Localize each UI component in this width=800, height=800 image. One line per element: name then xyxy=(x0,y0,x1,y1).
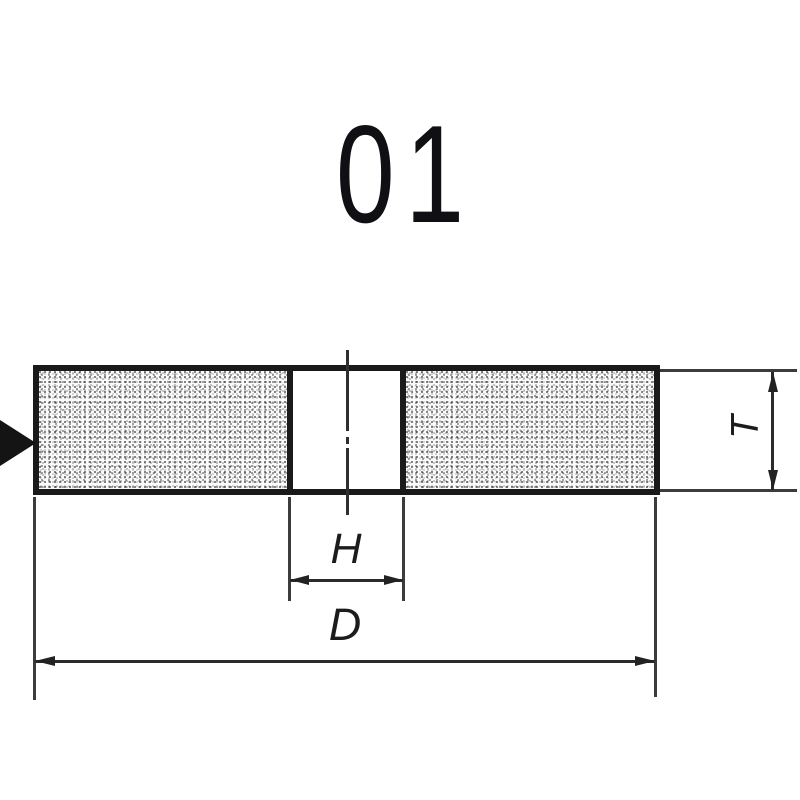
d-dimension-line xyxy=(35,660,655,663)
pointer-triangle-icon xyxy=(0,420,36,466)
centerline-lower-segment xyxy=(346,448,349,515)
t-arrow-down-icon xyxy=(768,470,778,490)
wheel-left-section xyxy=(33,365,293,495)
h-arrow-right-icon xyxy=(384,575,403,585)
centerline-upper-segment xyxy=(346,350,349,431)
diagram-page: 01 T H D xyxy=(0,0,800,800)
d-extension-line-right xyxy=(654,497,657,697)
h-dimension-label: H xyxy=(296,528,396,571)
h-extension-line-left xyxy=(288,497,291,601)
d-arrow-left-icon xyxy=(35,656,55,666)
centerline-center-dash xyxy=(346,437,349,444)
d-dimension-label: D xyxy=(295,602,395,647)
figure-title: 01 xyxy=(96,94,704,257)
d-arrow-right-icon xyxy=(635,656,655,666)
t-arrow-up-icon xyxy=(768,372,778,392)
d-extension-line-left xyxy=(33,497,36,700)
t-dimension-label: T xyxy=(724,395,768,459)
h-arrow-left-icon xyxy=(290,575,309,585)
wheel-right-section xyxy=(400,365,660,495)
h-extension-line-right xyxy=(402,497,405,601)
